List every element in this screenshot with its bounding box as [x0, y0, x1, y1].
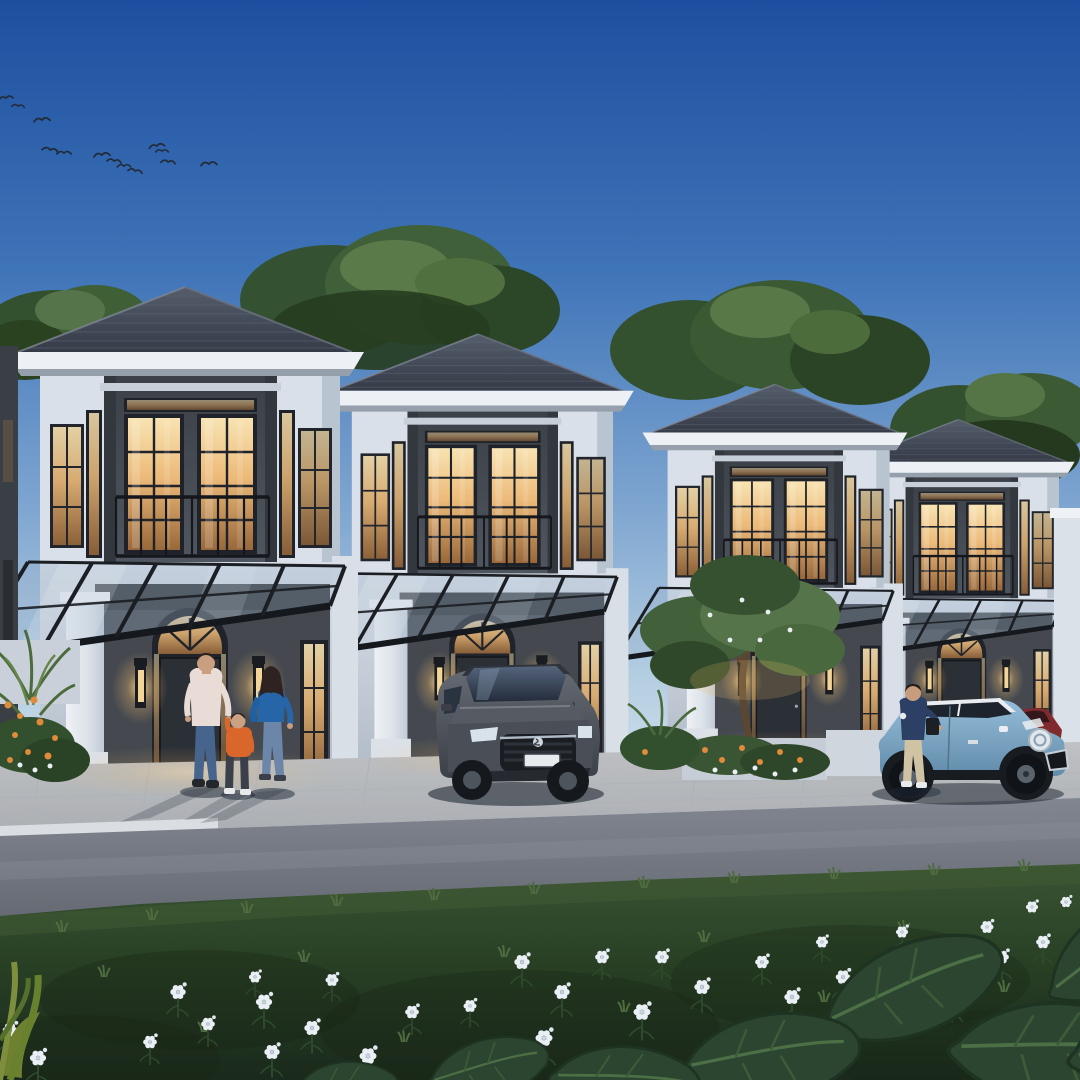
house-1 [0, 287, 364, 780]
round-headlight [1029, 729, 1051, 751]
render-canvas [0, 0, 1080, 1080]
bag [926, 718, 939, 735]
grille [1046, 750, 1068, 770]
headlight [578, 726, 592, 738]
